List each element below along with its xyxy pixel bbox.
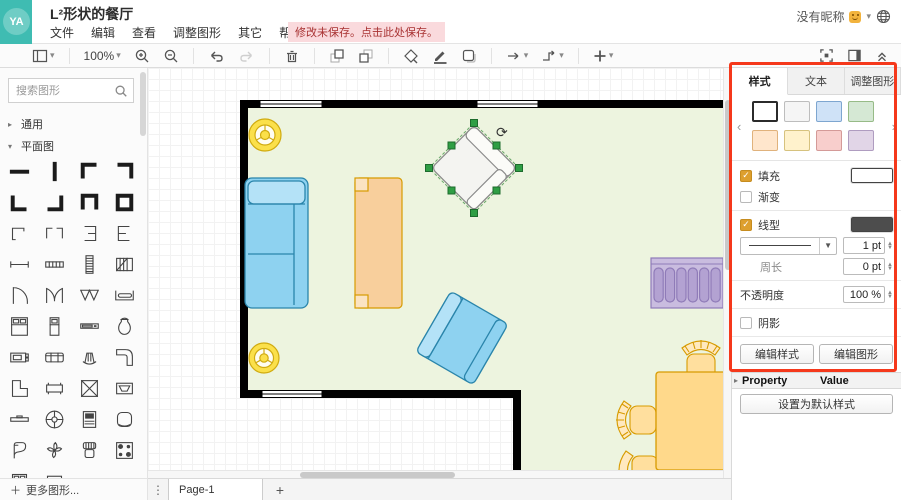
avatar[interactable]: YA [0, 0, 32, 44]
emoji-icon [849, 11, 861, 23]
shape-sliding-door[interactable] [107, 280, 142, 311]
arrow-icon [506, 48, 522, 64]
stairs-spiral-icon [44, 409, 65, 430]
shape-ottoman[interactable] [107, 404, 142, 435]
layout-icon [32, 48, 48, 64]
chevrons-up-icon [875, 49, 889, 63]
edit-shape-button[interactable]: 编辑图形 [819, 344, 893, 364]
value-column-header: Value [820, 375, 849, 387]
preset-swatch-red[interactable] [816, 130, 842, 151]
shape-corner-nw[interactable] [72, 156, 107, 187]
corner-ne-icon [114, 161, 135, 182]
preset-swatch-yellow[interactable] [784, 130, 810, 151]
line-width-input[interactable]: 1 pt [843, 237, 885, 254]
presets-prev-arrow[interactable]: ‹ [737, 119, 741, 134]
format-panel: 样式文本调整图形 ‹ › ✓ 填充 渐变 ✓ 线型 [731, 68, 901, 500]
shape-wall-thin[interactable] [2, 249, 37, 280]
shape-wall-vertical[interactable] [37, 156, 72, 187]
shape-bed-single[interactable] [37, 311, 72, 342]
shape-bed-cut[interactable] [2, 466, 37, 478]
shelf-icon [9, 409, 30, 430]
preset-swatch-gray[interactable] [784, 101, 810, 122]
toolbar-separator [269, 48, 270, 64]
shape-window[interactable] [37, 249, 72, 280]
sidebar-section-floorplan[interactable]: ▾ 平面图 [0, 136, 148, 156]
shape-stove[interactable] [107, 435, 142, 466]
door-double-icon [44, 285, 65, 306]
corner-sw-icon [9, 192, 30, 213]
fill-color-icon [403, 48, 419, 64]
shadow-icon [461, 48, 477, 64]
set-default-style-button[interactable]: 设置为默认样式 [740, 394, 893, 414]
chevron-right-icon: ▸ [8, 120, 15, 129]
toolbar: ▾ 100% ▾ ▾ ▾ ▾ [0, 44, 901, 68]
corner-double-icon [44, 223, 65, 244]
bring-to-front-icon [329, 48, 345, 64]
shape-tv-stand[interactable] [2, 342, 37, 373]
zoom-dropdown[interactable]: 100% ▾ [82, 46, 123, 66]
line-style-dropdown[interactable]: ▼ [740, 237, 837, 255]
document-title[interactable]: L²形状的餐厅 [50, 4, 133, 24]
shape-corner-double[interactable] [37, 218, 72, 249]
line-row: ✓ 线型 [732, 214, 901, 235]
more-shapes-button[interactable]: ＋ 更多图形... [0, 478, 148, 500]
toolbar-separator [314, 48, 315, 64]
shape-table[interactable] [37, 373, 72, 404]
shape-wall-e-right[interactable] [107, 218, 142, 249]
gradient-checkbox[interactable] [740, 191, 752, 203]
door-bifold-icon [79, 285, 100, 306]
table-x-icon [79, 378, 100, 399]
chevron-down-icon[interactable]: ▾ [866, 11, 871, 22]
waypoint-style-button[interactable]: ▾ [539, 46, 566, 66]
perimeter-stepper[interactable]: ▲▼ [887, 263, 893, 271]
chevron-down-icon: ▾ [524, 50, 529, 61]
view-menu-button[interactable]: ▾ [30, 46, 57, 66]
plus-icon [593, 49, 607, 63]
preset-swatch-white[interactable] [752, 101, 778, 122]
shape-shelf[interactable] [2, 404, 37, 435]
shadow-button[interactable] [459, 46, 479, 66]
gradient-label: 渐变 [758, 189, 780, 205]
connection-style-button[interactable]: ▾ [504, 46, 531, 66]
sofa-blue [245, 178, 308, 308]
shape-plant[interactable] [37, 435, 72, 466]
opacity-row: 不透明度 100 % ▲▼ [732, 284, 901, 305]
sidebar-scrollbar[interactable] [140, 72, 146, 136]
toolbar-separator [491, 48, 492, 64]
send-to-back-icon [358, 48, 374, 64]
shape-armchair-fan[interactable] [72, 342, 107, 373]
shape-l-icon [9, 378, 30, 399]
user-area[interactable]: 没有昵称 ▾ [796, 8, 891, 25]
wall-u-icon [79, 192, 100, 213]
page-tabs-bar: ⋮ Page-1 + [148, 478, 731, 500]
zoom-in-button[interactable] [132, 46, 152, 66]
zoom-level: 100% [84, 49, 115, 63]
cabinet-cut-icon [44, 471, 65, 478]
header: YA L²形状的餐厅 文件编辑查看调整图形其它帮助 修改未保存。点击此处保存。 … [0, 0, 901, 44]
page-tab[interactable]: Page-1 [168, 479, 263, 500]
zoom-in-icon [134, 48, 150, 64]
wall-thin-icon [9, 254, 30, 275]
fill-checkbox[interactable]: ✓ [740, 170, 752, 182]
line-style-row: ▼ 1 pt ▲▼ [732, 235, 901, 256]
search-input[interactable] [9, 85, 114, 97]
undo-button[interactable] [206, 46, 227, 66]
menubar: 文件编辑查看调整图形其它帮助 [50, 24, 303, 41]
shadow-checkbox[interactable] [740, 317, 752, 329]
gradient-row: 渐变 [732, 186, 901, 207]
door-icon [9, 285, 30, 306]
app-window: YA L²形状的餐厅 文件编辑查看调整图形其它帮助 修改未保存。点击此处保存。 … [0, 0, 901, 500]
wall-vertical-icon [44, 161, 65, 182]
fireplace-icon [114, 378, 135, 399]
shape-shape-l[interactable] [2, 373, 37, 404]
couch-orange [355, 178, 402, 308]
plus-icon: ＋ [10, 482, 21, 498]
menu-item-edit[interactable]: 编辑 [91, 24, 115, 41]
preset-swatch-blue[interactable] [816, 101, 842, 122]
tab-text[interactable]: 文本 [788, 68, 844, 94]
plant-icon [44, 440, 65, 461]
stove-icon [114, 440, 135, 461]
trash-icon [284, 48, 300, 64]
dresser-icon [79, 409, 100, 430]
format-panel-toggle[interactable] [845, 46, 864, 66]
counter-l-icon [114, 347, 135, 368]
menu-item-file[interactable]: 文件 [50, 24, 74, 41]
search-icon [114, 84, 128, 98]
armchair-fan-icon [79, 347, 100, 368]
user-label: 没有昵称 [796, 8, 844, 25]
divider [732, 210, 901, 211]
shape-door[interactable] [2, 280, 37, 311]
fit-page-button[interactable] [817, 46, 836, 66]
edit-style-button[interactable]: 编辑样式 [740, 344, 814, 364]
shape-wall[interactable] [2, 156, 37, 187]
chevron-down-icon: ▾ [8, 142, 15, 151]
shape-search[interactable] [8, 78, 134, 103]
to-back-button[interactable] [356, 46, 376, 66]
bed-double-icon [9, 316, 30, 337]
stairs-turn-icon [114, 254, 135, 275]
bag-icon [114, 316, 135, 337]
stairs-icon [79, 254, 100, 275]
opacity-label: 不透明度 [740, 287, 784, 303]
panel-footer [731, 478, 901, 500]
bed-single-icon [44, 316, 65, 337]
corner-thin-icon [9, 223, 30, 244]
floorplan-drawing: ⟳ [148, 68, 731, 478]
radiator-couch-purple [651, 258, 723, 308]
dining-table [656, 372, 726, 470]
shape-chair[interactable] [72, 435, 107, 466]
chevron-down-icon: ▾ [116, 50, 121, 61]
to-front-button[interactable] [327, 46, 347, 66]
pencil-icon [432, 48, 448, 64]
canvas-vertical-scrollbar[interactable] [723, 68, 731, 478]
shape-corner-sw[interactable] [2, 187, 37, 218]
shape-flat-tv[interactable] [72, 311, 107, 342]
chevron-down-icon: ▾ [559, 50, 564, 61]
collapse-toolbar-button[interactable] [873, 46, 891, 66]
shadow-row: 阴影 [732, 312, 901, 333]
unsaved-changes-badge[interactable]: 修改未保存。点击此处保存。 [288, 22, 445, 42]
shape-table-x[interactable] [72, 373, 107, 404]
shadow-label: 阴影 [758, 315, 780, 331]
shape-fireplace[interactable] [107, 373, 142, 404]
shape-door-bifold[interactable] [72, 280, 107, 311]
chevron-down-icon: ▾ [50, 50, 55, 61]
property-table-header[interactable]: ▸ Property Value [732, 372, 901, 389]
perimeter-input[interactable]: 0 pt [843, 258, 885, 275]
fit-screen-icon [819, 48, 834, 63]
shape-dresser[interactable] [72, 404, 107, 435]
shape-stairs-turn[interactable] [107, 249, 142, 280]
window-icon [44, 254, 65, 275]
fill-label: 填充 [758, 168, 780, 184]
shape-bed-double[interactable] [2, 311, 37, 342]
pages-menu-icon[interactable]: ⋮ [148, 483, 168, 497]
property-column-header: Property [742, 375, 787, 387]
sliding-door-icon [114, 285, 135, 306]
sofa-icon [44, 347, 65, 368]
toolbar-separator [193, 48, 194, 64]
wall-icon [9, 161, 30, 182]
zoom-out-button[interactable] [161, 46, 181, 66]
shape-bag[interactable] [107, 311, 142, 342]
triangle-icon: ▸ [734, 376, 738, 385]
fill-color-button[interactable] [401, 46, 421, 66]
toolbar-separator [388, 48, 389, 64]
shape-cabinet-cut[interactable] [37, 466, 72, 478]
divider [732, 336, 901, 337]
piano-icon [9, 440, 30, 461]
canvas-horizontal-scrollbar[interactable] [148, 470, 723, 478]
preset-swatch-purple[interactable] [848, 130, 874, 151]
redo-icon [238, 48, 255, 64]
shape-corner-se[interactable] [37, 187, 72, 218]
line-label: 线型 [758, 217, 780, 233]
undo-icon [208, 48, 225, 64]
shape-room[interactable] [107, 187, 142, 218]
opacity-stepper[interactable]: ▲▼ [887, 291, 893, 299]
preset-swatch-green[interactable] [848, 101, 874, 122]
shape-corner-thin[interactable] [2, 218, 37, 249]
elbow-connector-icon [541, 48, 557, 64]
line-color-swatch[interactable] [851, 217, 893, 232]
room-icon [114, 192, 135, 213]
opacity-input[interactable]: 100 % [843, 286, 885, 303]
shape-door-double[interactable] [37, 280, 72, 311]
shape-wall-e-left[interactable] [72, 218, 107, 249]
fill-color-swatch[interactable] [851, 168, 893, 183]
shape-wall-u[interactable] [72, 187, 107, 218]
chevron-down-icon: ▾ [609, 50, 614, 61]
divider [732, 280, 901, 281]
drawing-canvas[interactable]: ⟳ [148, 68, 731, 478]
line-style-preview [749, 245, 811, 246]
line-color-button[interactable] [430, 46, 450, 66]
section-label: 平面图 [21, 138, 54, 154]
toolbar-separator [69, 48, 70, 64]
delete-button[interactable] [282, 46, 302, 66]
fill-row: ✓ 填充 [732, 165, 901, 186]
format-panel-tabs: 样式文本调整图形 [732, 68, 901, 95]
language-globe-icon[interactable] [876, 9, 891, 24]
chair-icon [79, 440, 100, 461]
page-tab-label: Page-1 [179, 484, 214, 496]
perimeter-label: 周长 [760, 259, 782, 275]
format-panel-icon [847, 48, 862, 63]
dropdown-arrow-icon[interactable]: ▼ [819, 238, 836, 254]
ceiling-lamp [249, 343, 279, 373]
menu-item-view[interactable]: 查看 [132, 24, 156, 41]
shape-palette [2, 156, 142, 478]
menu-item-extras[interactable]: 其它 [238, 24, 262, 41]
tab-arrange[interactable]: 调整图形 [845, 68, 901, 94]
shape-stairs-spiral[interactable] [37, 404, 72, 435]
ceiling-lamp [249, 119, 281, 151]
menu-item-arrange[interactable]: 调整图形 [173, 24, 221, 41]
flat-tv-icon [79, 316, 100, 337]
corner-nw-icon [79, 161, 100, 182]
perimeter-row: 周长 0 pt ▲▼ [732, 256, 901, 277]
insert-button[interactable]: ▾ [591, 46, 616, 66]
redo-button[interactable] [236, 46, 257, 66]
shape-sofa[interactable] [37, 342, 72, 373]
sidebar-section-general[interactable]: ▸ 通用 [0, 114, 148, 134]
corner-se-icon [44, 192, 65, 213]
shape-stairs[interactable] [72, 249, 107, 280]
tv-stand-icon [9, 347, 30, 368]
line-width-stepper[interactable]: ▲▼ [887, 242, 893, 250]
table-icon [44, 378, 65, 399]
more-shapes-label: 更多图形... [26, 482, 79, 498]
bed-cut-icon [9, 471, 30, 478]
add-page-button[interactable]: + [263, 482, 297, 498]
wall-e-left-icon [79, 223, 100, 244]
preset-swatch-orange[interactable] [752, 130, 778, 151]
rotate-handle-icon: ⟳ [496, 124, 508, 140]
divider [732, 308, 901, 309]
line-checkbox[interactable]: ✓ [740, 219, 752, 231]
presets-next-arrow[interactable]: › [892, 119, 896, 134]
wall-e-right-icon [114, 223, 135, 244]
shape-corner-ne[interactable] [107, 156, 142, 187]
preset-swatch-grid [752, 101, 880, 154]
section-label: 通用 [21, 116, 43, 132]
toolbar-separator [578, 48, 579, 64]
avatar-initials: YA [3, 8, 30, 35]
shape-counter-l[interactable] [107, 342, 142, 373]
shape-piano[interactable] [2, 435, 37, 466]
dining-chair [616, 401, 656, 439]
ottoman-icon [114, 409, 135, 430]
style-presets: ‹ › [732, 95, 901, 161]
zoom-out-icon [163, 48, 179, 64]
tab-style[interactable]: 样式 [732, 68, 788, 95]
shape-sidebar: ▸ 通用 ▾ 平面图 [0, 68, 148, 478]
